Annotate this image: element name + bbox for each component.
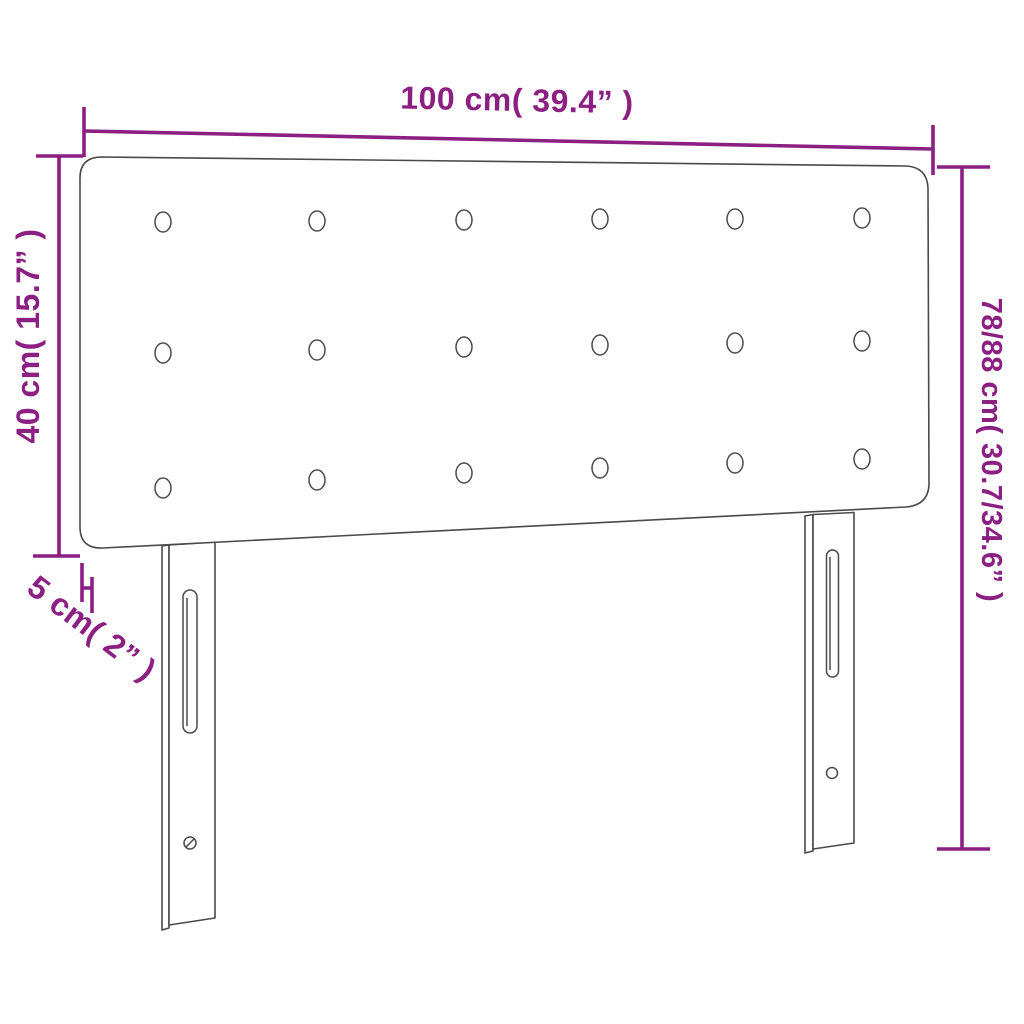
left-leg [162,542,215,930]
right-leg [805,513,854,854]
tufting-button [456,210,472,230]
tufting-button [592,458,608,478]
tufting-button [592,209,608,229]
tufting-button [309,211,325,231]
right-leg-side-face [805,515,813,854]
left-height-dimension-label: 40 cm( 15.7” ) [10,228,46,443]
tufting-button [456,337,472,357]
tufting-button [309,340,325,360]
depth-dimension: 5 cm( 2” ) [21,563,163,688]
width-dimension-label: 100 cm( 39.4” ) [400,80,634,121]
right-leg-screw-hole [827,768,838,779]
tufting-button [854,331,870,351]
tufting-button [155,478,171,498]
right-height-dimension: 78/88 cm( 30.7/34.6” ) [937,167,1007,849]
tufting-button [456,463,472,483]
tufting-button [854,208,870,228]
tufting-button [592,335,608,355]
tufting-button [155,212,171,232]
right-leg-slot [827,550,839,677]
headboard-dimension-diagram: 100 cm( 39.4” ) 40 cm( 15.7” ) 78/88 cm(… [0,0,1024,1024]
tufting-button [155,343,171,363]
tufting-button [854,449,870,469]
tufting-button [309,470,325,490]
tufting-button [727,333,743,353]
left-height-dimension: 40 cm( 15.7” ) [10,156,83,556]
tufting-button [727,453,743,473]
left-leg-slot [183,590,197,733]
tufting-button [727,209,743,229]
headboard-body [80,157,929,548]
right-height-dimension-label: 78/88 cm( 30.7/34.6” ) [975,298,1007,602]
width-dimension-line [84,131,933,149]
diagram-canvas: 100 cm( 39.4” ) 40 cm( 15.7” ) 78/88 cm(… [0,0,1024,1024]
left-leg-side-face [162,545,169,930]
